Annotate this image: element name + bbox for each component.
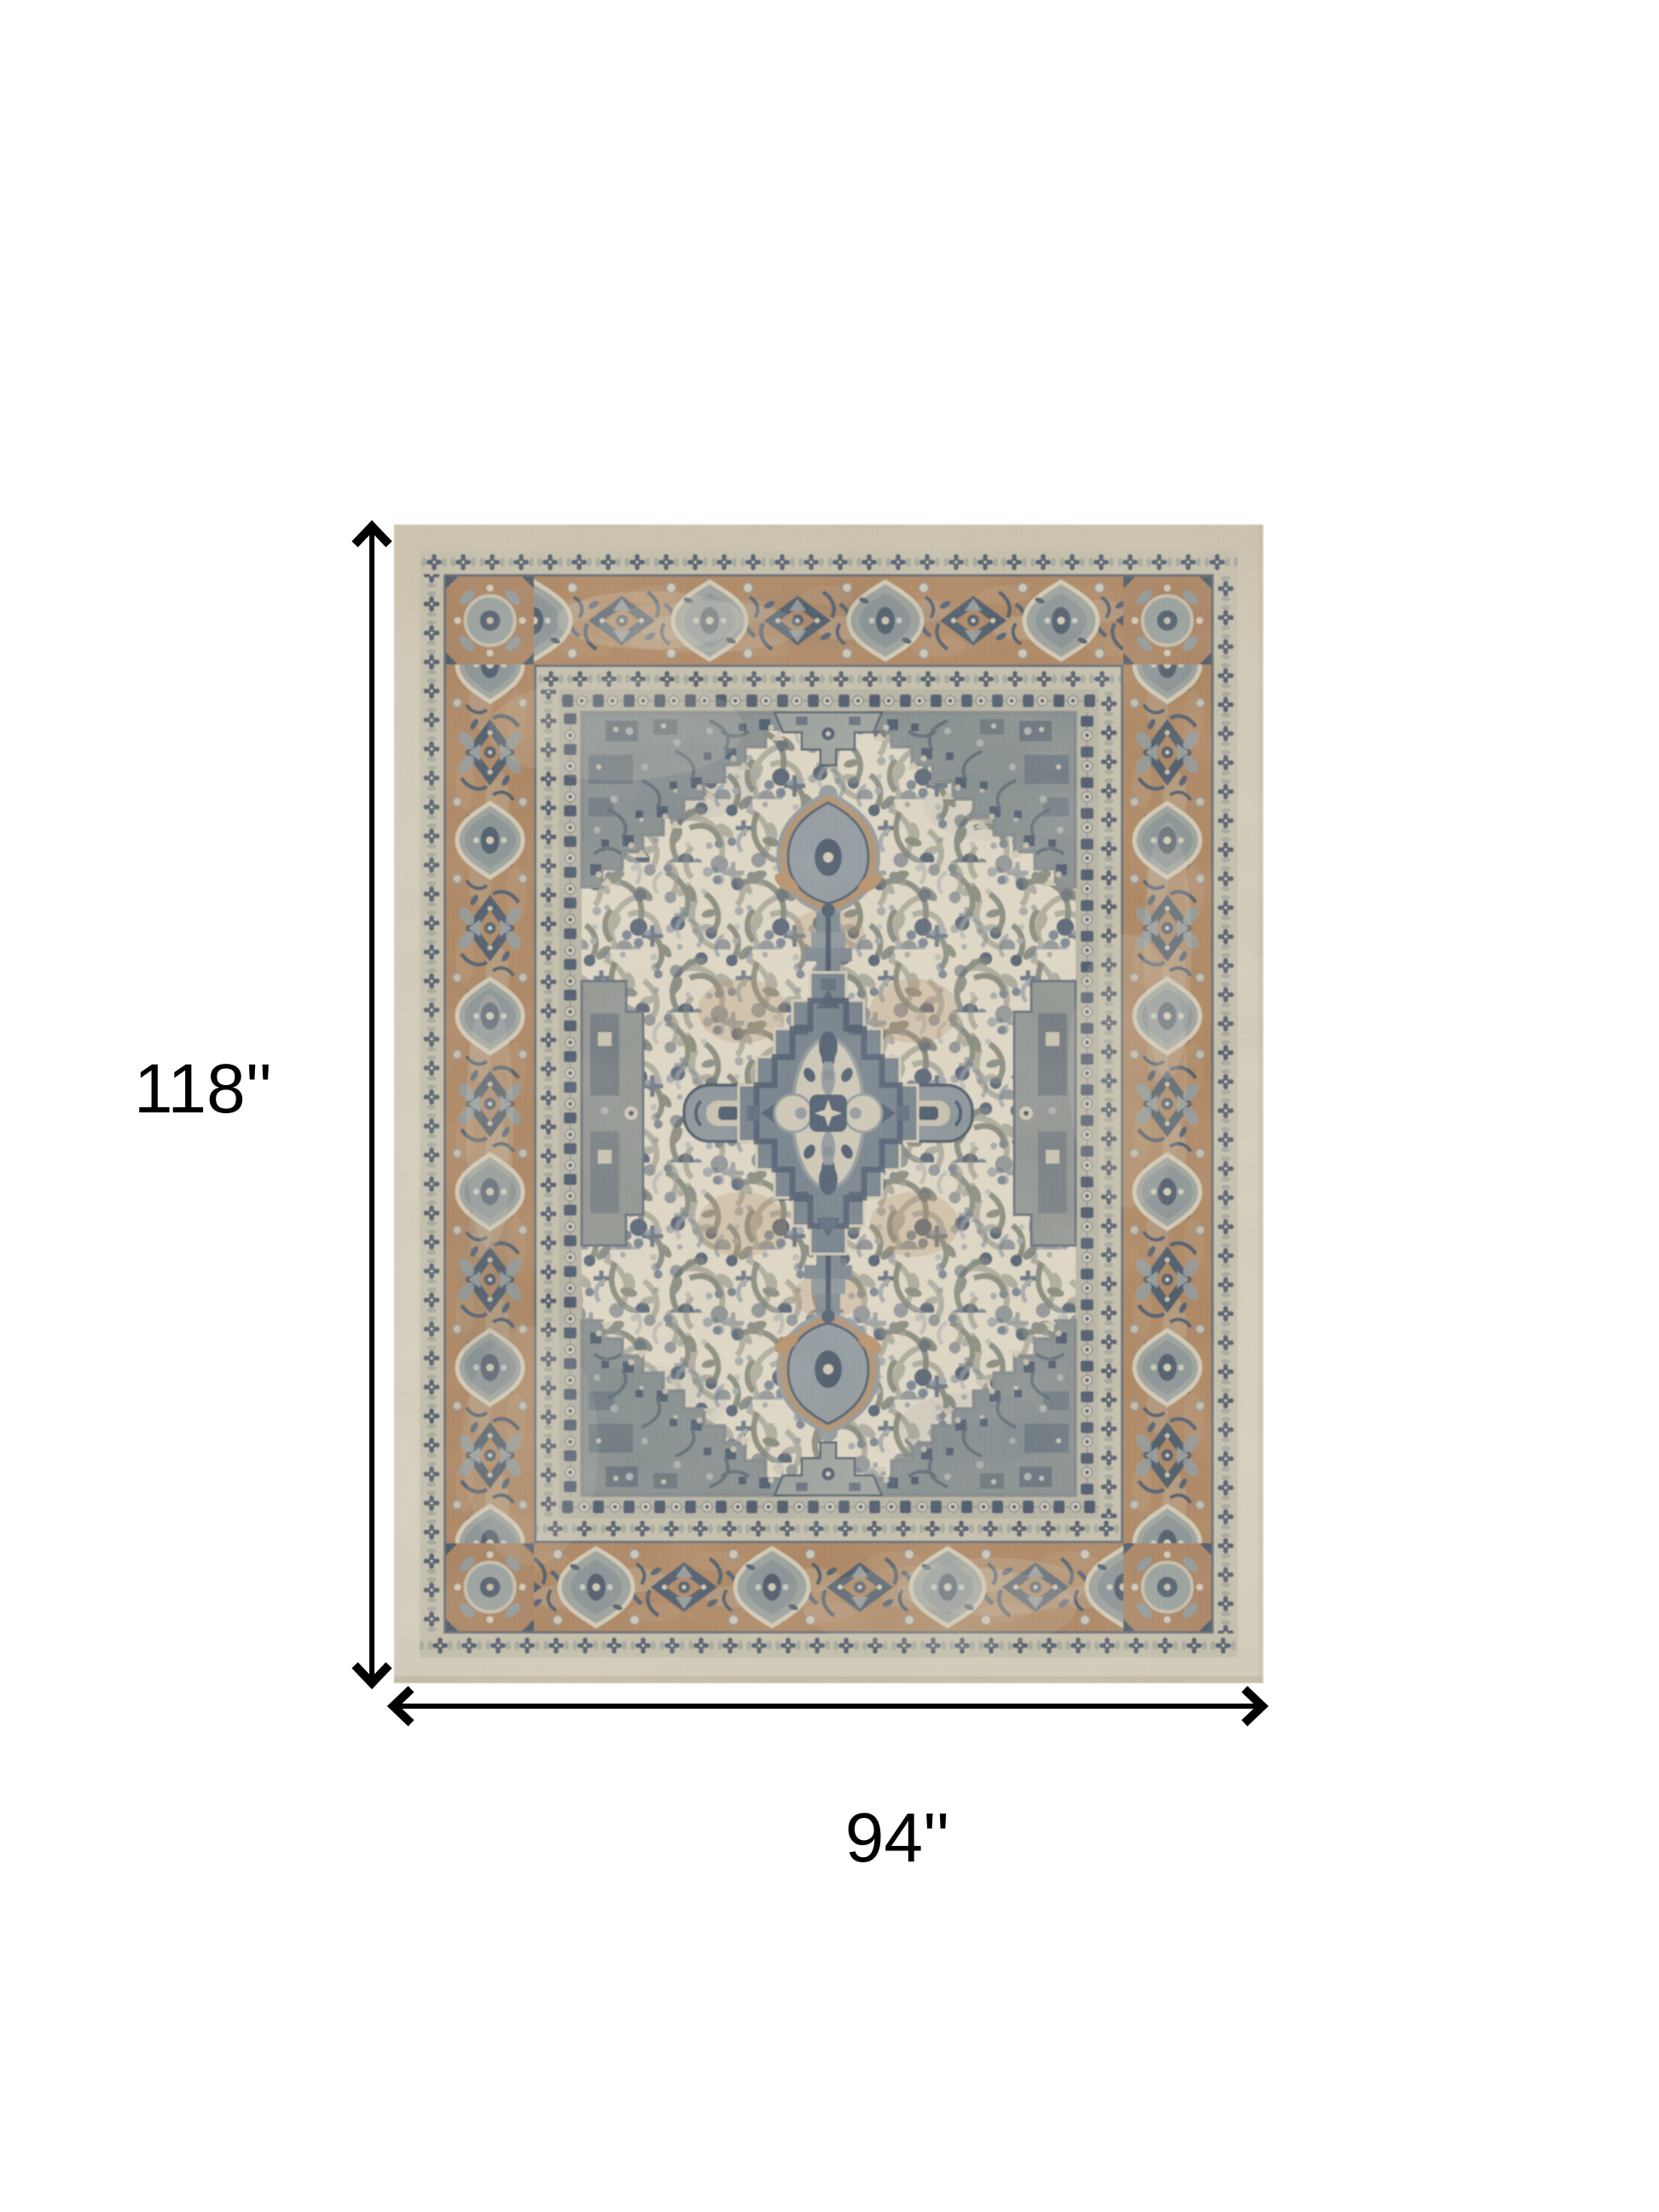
svg-text:118'': 118'' xyxy=(134,1050,272,1128)
svg-text:94'': 94'' xyxy=(845,1799,950,1877)
